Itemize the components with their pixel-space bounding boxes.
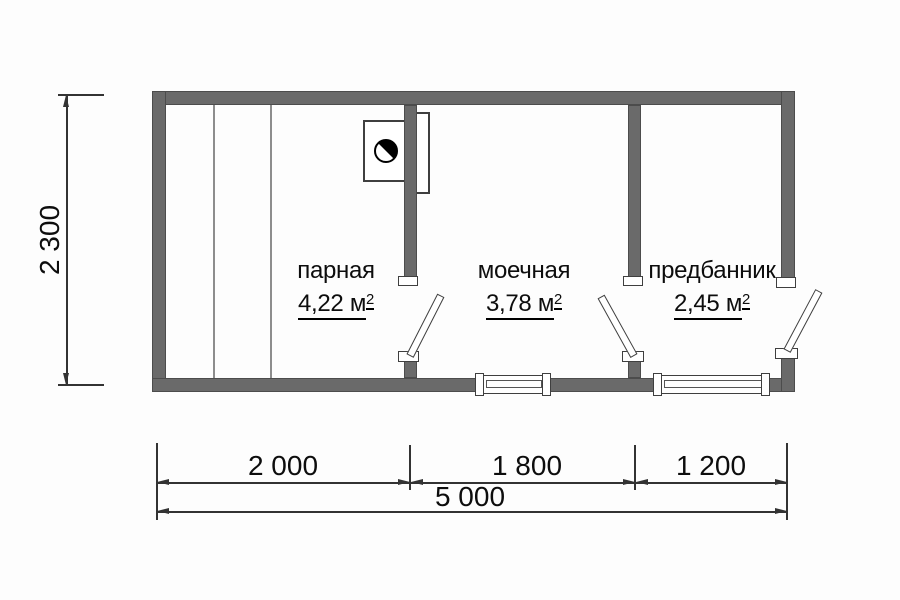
floor-plan: парная 4,22 м2 моечная 3,78 м2 предбанни…	[0, 0, 900, 600]
partition-wall-1-upper	[404, 105, 417, 279]
exterior-wall-top	[152, 91, 795, 105]
partition-wall-1-lower	[404, 360, 417, 378]
room-area: 4,22 м2	[256, 286, 416, 318]
dim-tick-bottom	[58, 384, 104, 386]
stove-circle-icon	[374, 139, 398, 163]
bench-line-1	[213, 105, 215, 378]
bench-line-2	[270, 105, 272, 378]
window-cap-left-washroom	[475, 373, 484, 396]
room-label-steam-room: парная 4,22 м2	[256, 257, 416, 318]
dim-arrow	[157, 479, 169, 485]
room-area: 2,45 м2	[627, 286, 797, 318]
dim-tick-top	[58, 94, 104, 96]
dim-arrow	[623, 479, 635, 485]
partition-wall-2-upper	[628, 105, 641, 279]
room-name: парная	[256, 257, 416, 285]
dim-arrow	[398, 479, 410, 485]
window-glazing-anteroom	[664, 380, 762, 388]
dim-label-segment-3: 1 200	[661, 452, 761, 480]
dim-label-total: 5 000	[420, 483, 520, 511]
window-cap-right-washroom	[542, 373, 551, 396]
partition-wall-2-lower	[628, 360, 641, 378]
room-label-washroom: моечная 3,78 м2	[444, 257, 604, 318]
exterior-wall-bottom-1	[152, 378, 478, 392]
dim-arrow-up	[63, 95, 69, 107]
room-area: 3,78 м2	[444, 286, 604, 318]
dim-arrow	[157, 508, 169, 514]
window-cap-right-anteroom	[761, 373, 770, 396]
exterior-wall-bottom-2	[548, 378, 655, 392]
dim-arrow	[775, 508, 787, 514]
room-name: предбанник	[627, 257, 797, 285]
dim-label-segment-1: 2 000	[233, 452, 333, 480]
room-label-anteroom: предбанник 2,45 м2	[627, 257, 797, 318]
window-glazing-washroom	[486, 380, 542, 388]
dim-arrow	[636, 479, 648, 485]
room-name: моечная	[444, 257, 604, 285]
exterior-wall-right-upper	[781, 91, 795, 280]
dim-arrow	[775, 479, 787, 485]
exterior-wall-left	[152, 91, 166, 392]
dim-label-segment-2: 1 800	[477, 452, 577, 480]
window-cap-left-anteroom	[653, 373, 662, 396]
dim-label-height: 2 300	[36, 190, 64, 290]
dim-line-height	[66, 95, 68, 385]
